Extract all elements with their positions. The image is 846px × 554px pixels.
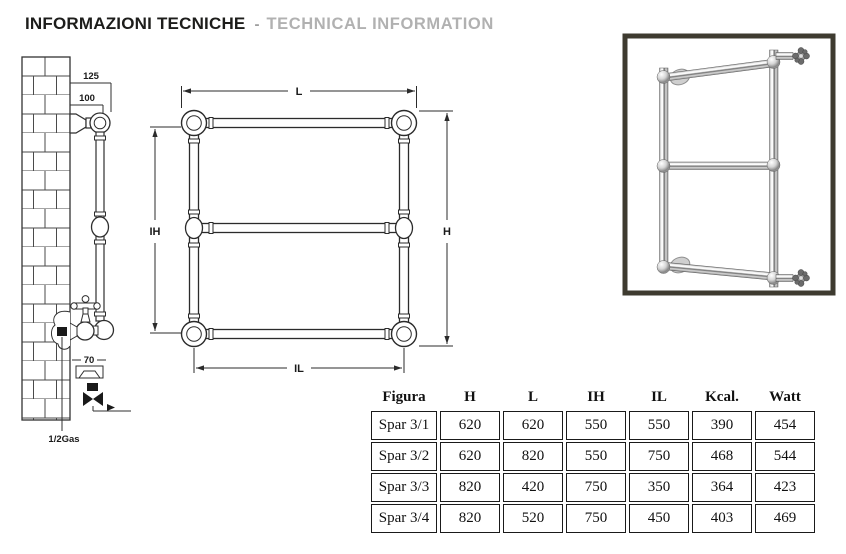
ball-joint	[392, 111, 417, 136]
value-cell: 620	[503, 411, 563, 440]
ball-joint	[396, 218, 413, 239]
dim-IH-label: IH	[150, 226, 161, 238]
column-header: H	[440, 388, 500, 409]
value-cell: 550	[629, 411, 689, 440]
value-cell: 750	[566, 504, 626, 533]
table-row: Spar 3/4820520750450403469	[371, 504, 815, 533]
dim-H-label: H	[443, 226, 451, 238]
ball-joint	[392, 322, 417, 347]
spec-table-body: Spar 3/1620620550550390454Spar 3/2620820…	[371, 411, 815, 533]
value-cell: 364	[692, 473, 752, 502]
value-cell: 820	[440, 504, 500, 533]
gas-connection-label: 1/2Gas	[48, 434, 79, 445]
spec-table: FiguraHLIHILKcal.Watt Spar 3/16206205505…	[368, 386, 818, 535]
ball-joint	[186, 218, 203, 239]
bracket-cover-icon	[76, 366, 103, 378]
column-header: IH	[566, 388, 626, 409]
value-cell: 550	[566, 411, 626, 440]
technical-information-page: INFORMAZIONI TECNICHE-TECHNICAL INFORMAT…	[0, 0, 846, 554]
value-cell: 820	[503, 442, 563, 471]
value-cell: 420	[503, 473, 563, 502]
ball-joint	[182, 322, 207, 347]
dim-L-label: L	[296, 86, 303, 98]
spec-table-header: FiguraHLIHILKcal.Watt	[371, 388, 815, 409]
value-cell: 350	[629, 473, 689, 502]
value-cell: 550	[566, 442, 626, 471]
figura-cell: Spar 3/4	[371, 504, 437, 533]
side-view-drawing: 125 100	[22, 57, 131, 445]
value-cell: 750	[629, 442, 689, 471]
ball-joint	[90, 113, 110, 133]
ball-joint	[657, 160, 670, 173]
value-cell: 469	[755, 504, 815, 533]
ball-joint	[92, 217, 109, 237]
valve-body	[76, 322, 94, 340]
column-header: Watt	[755, 388, 815, 409]
value-cell: 750	[566, 473, 626, 502]
value-cell: 544	[755, 442, 815, 471]
ball-joint	[767, 159, 780, 172]
valve-symbol-icon	[83, 383, 115, 411]
figura-cell: Spar 3/1	[371, 411, 437, 440]
table-row: Spar 3/3820420750350364423	[371, 473, 815, 502]
product-photo	[625, 36, 833, 293]
figura-cell: Spar 3/3	[371, 473, 437, 502]
value-cell: 468	[692, 442, 752, 471]
value-cell: 403	[692, 504, 752, 533]
wall-flange-icon	[70, 323, 77, 340]
dim-70-label: 70	[84, 355, 95, 366]
ball-joint	[182, 111, 207, 136]
table-row: Spar 3/1620620550550390454	[371, 411, 815, 440]
ball-joint	[657, 261, 670, 274]
ball-joint	[657, 71, 670, 84]
value-cell: 620	[440, 411, 500, 440]
figura-cell: Spar 3/2	[371, 442, 437, 471]
dim-100-label: 100	[79, 93, 95, 104]
value-cell: 520	[503, 504, 563, 533]
value-cell: 454	[755, 411, 815, 440]
front-view-drawing: L H IH IL	[150, 86, 454, 375]
value-cell: 423	[755, 473, 815, 502]
value-cell: 820	[440, 473, 500, 502]
column-header: L	[503, 388, 563, 409]
dim-125-label: 125	[83, 71, 100, 82]
column-header: Figura	[371, 388, 437, 409]
brick-wall	[22, 57, 70, 420]
pipe-inlet	[57, 327, 67, 336]
value-cell: 450	[629, 504, 689, 533]
table-row: Spar 3/2620820550750468544	[371, 442, 815, 471]
dim-IL-label: IL	[294, 363, 304, 375]
column-header: Kcal.	[692, 388, 752, 409]
value-cell: 620	[440, 442, 500, 471]
value-cell: 390	[692, 411, 752, 440]
wall-bracket-icon	[70, 114, 86, 133]
column-header: IL	[629, 388, 689, 409]
